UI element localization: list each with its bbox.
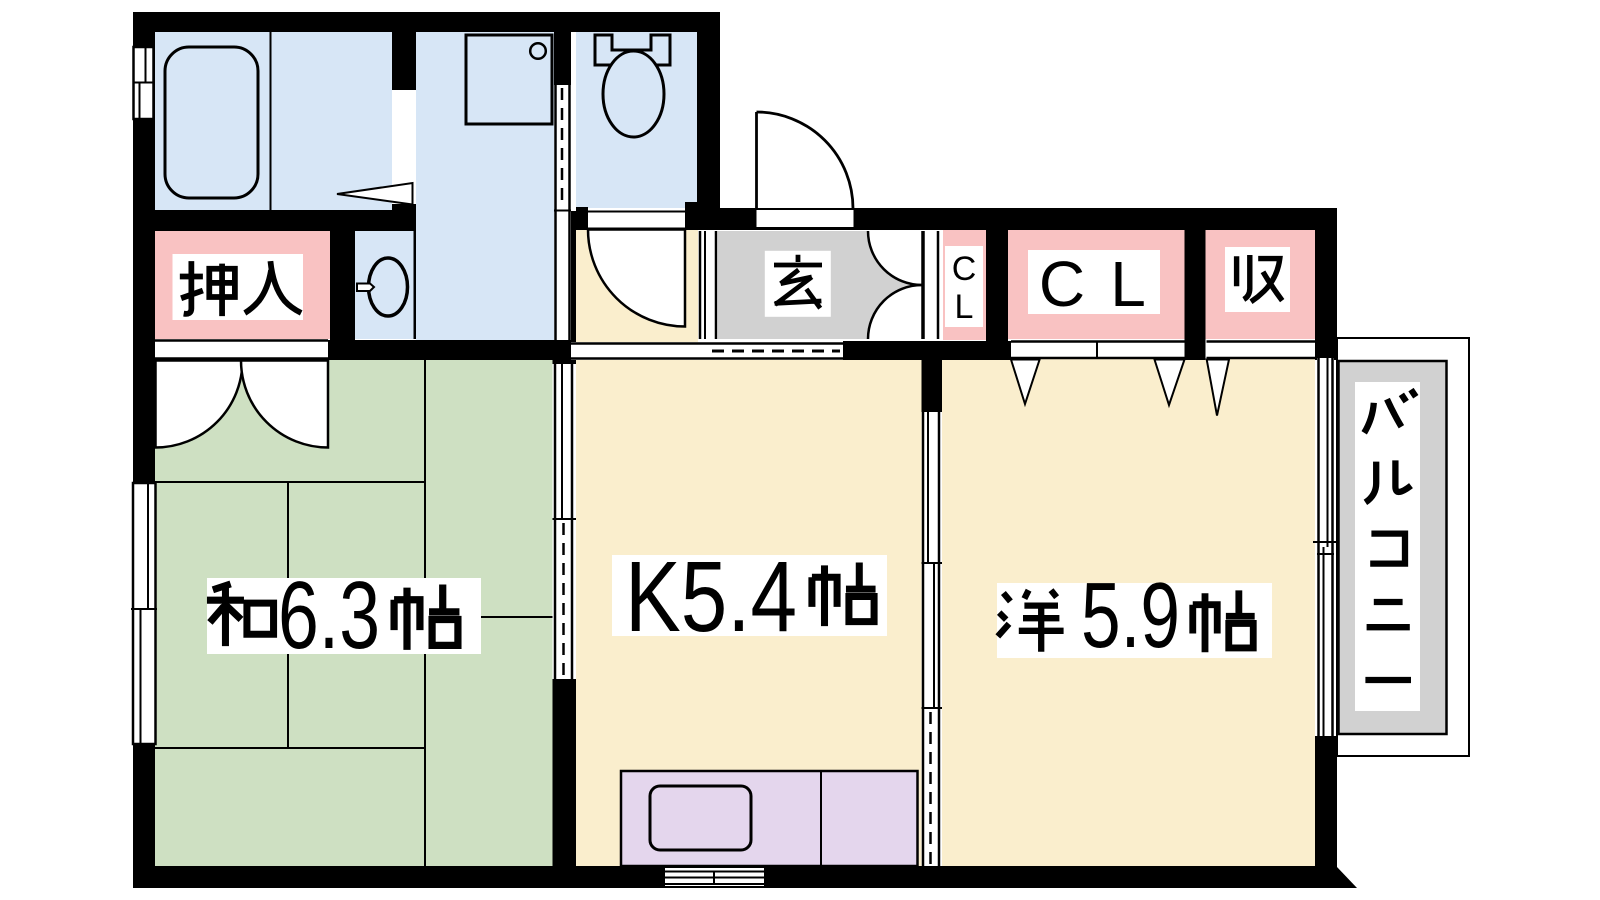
svg-text:C: C — [952, 250, 977, 288]
svg-text:C: C — [1039, 248, 1085, 320]
svg-text:L: L — [1110, 248, 1146, 320]
svg-text:6.3: 6.3 — [278, 562, 380, 669]
svg-text:L: L — [955, 288, 974, 326]
svg-text:5.9: 5.9 — [1081, 563, 1180, 667]
svg-text:K5.4: K5.4 — [625, 541, 797, 653]
